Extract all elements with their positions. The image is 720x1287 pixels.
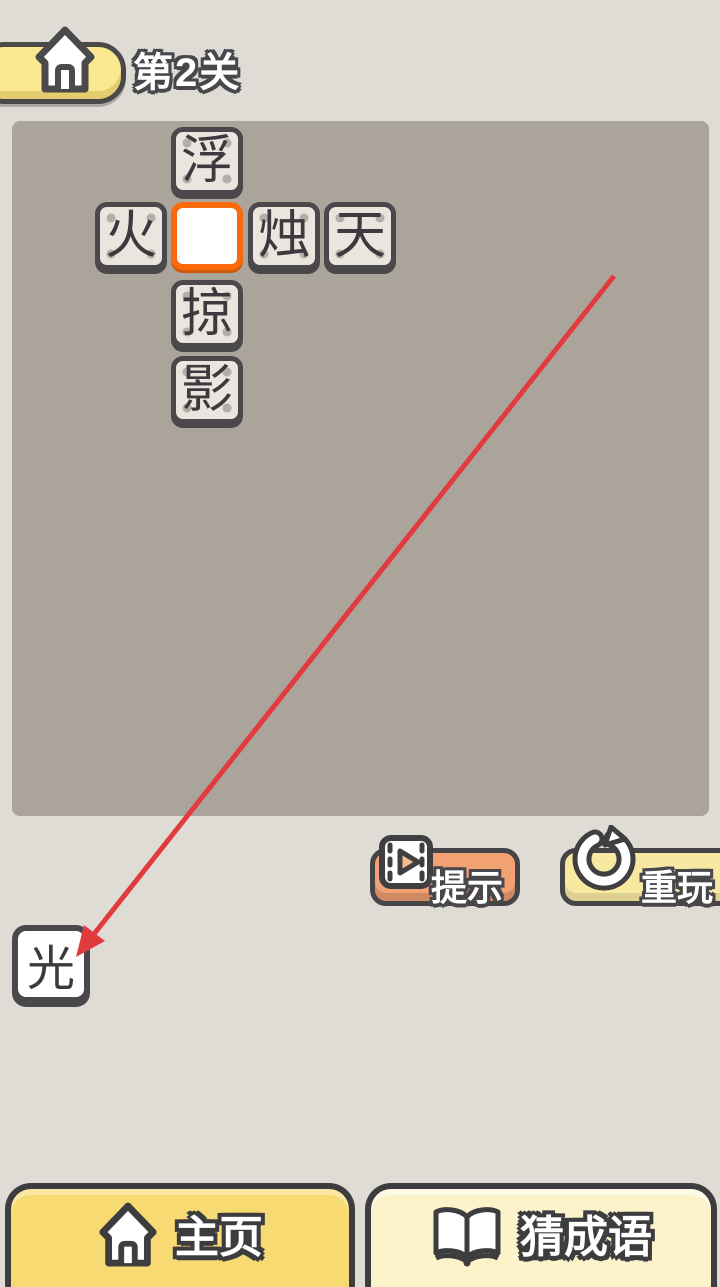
nav-guess-idiom-button[interactable]: 猜成语 (365, 1183, 717, 1287)
replay-button[interactable]: 重玩 (560, 848, 720, 906)
board-tile[interactable]: 烛 (248, 202, 320, 270)
nav-home-button[interactable]: 主页 (5, 1183, 355, 1287)
puzzle-board: 浮 火 烛 天 掠 影 (12, 121, 709, 816)
home-button[interactable] (0, 42, 126, 104)
board-tile-empty-active[interactable] (171, 202, 243, 270)
board-tile[interactable]: 掠 (171, 280, 243, 348)
board-tile[interactable]: 火 (95, 202, 167, 270)
open-book-icon (430, 1205, 504, 1272)
word-puzzle-game-screen: { "header": { "level_label": "第2关", "hom… (0, 0, 720, 1280)
board-tile[interactable]: 天 (324, 202, 396, 270)
house-icon (97, 1201, 159, 1276)
board-tile[interactable]: 影 (171, 356, 243, 424)
board-tile[interactable]: 浮 (171, 127, 243, 195)
level-title: 第2关 (133, 40, 241, 98)
nav-home-label: 主页 (175, 1201, 263, 1275)
hint-button-label: 提示 (431, 859, 503, 911)
nav-guess-label: 猜成语 (520, 1201, 652, 1275)
hint-button[interactable]: 提示 (370, 848, 520, 906)
tray-tile[interactable]: 光 (12, 925, 90, 1003)
replay-button-label: 重玩 (641, 859, 713, 911)
